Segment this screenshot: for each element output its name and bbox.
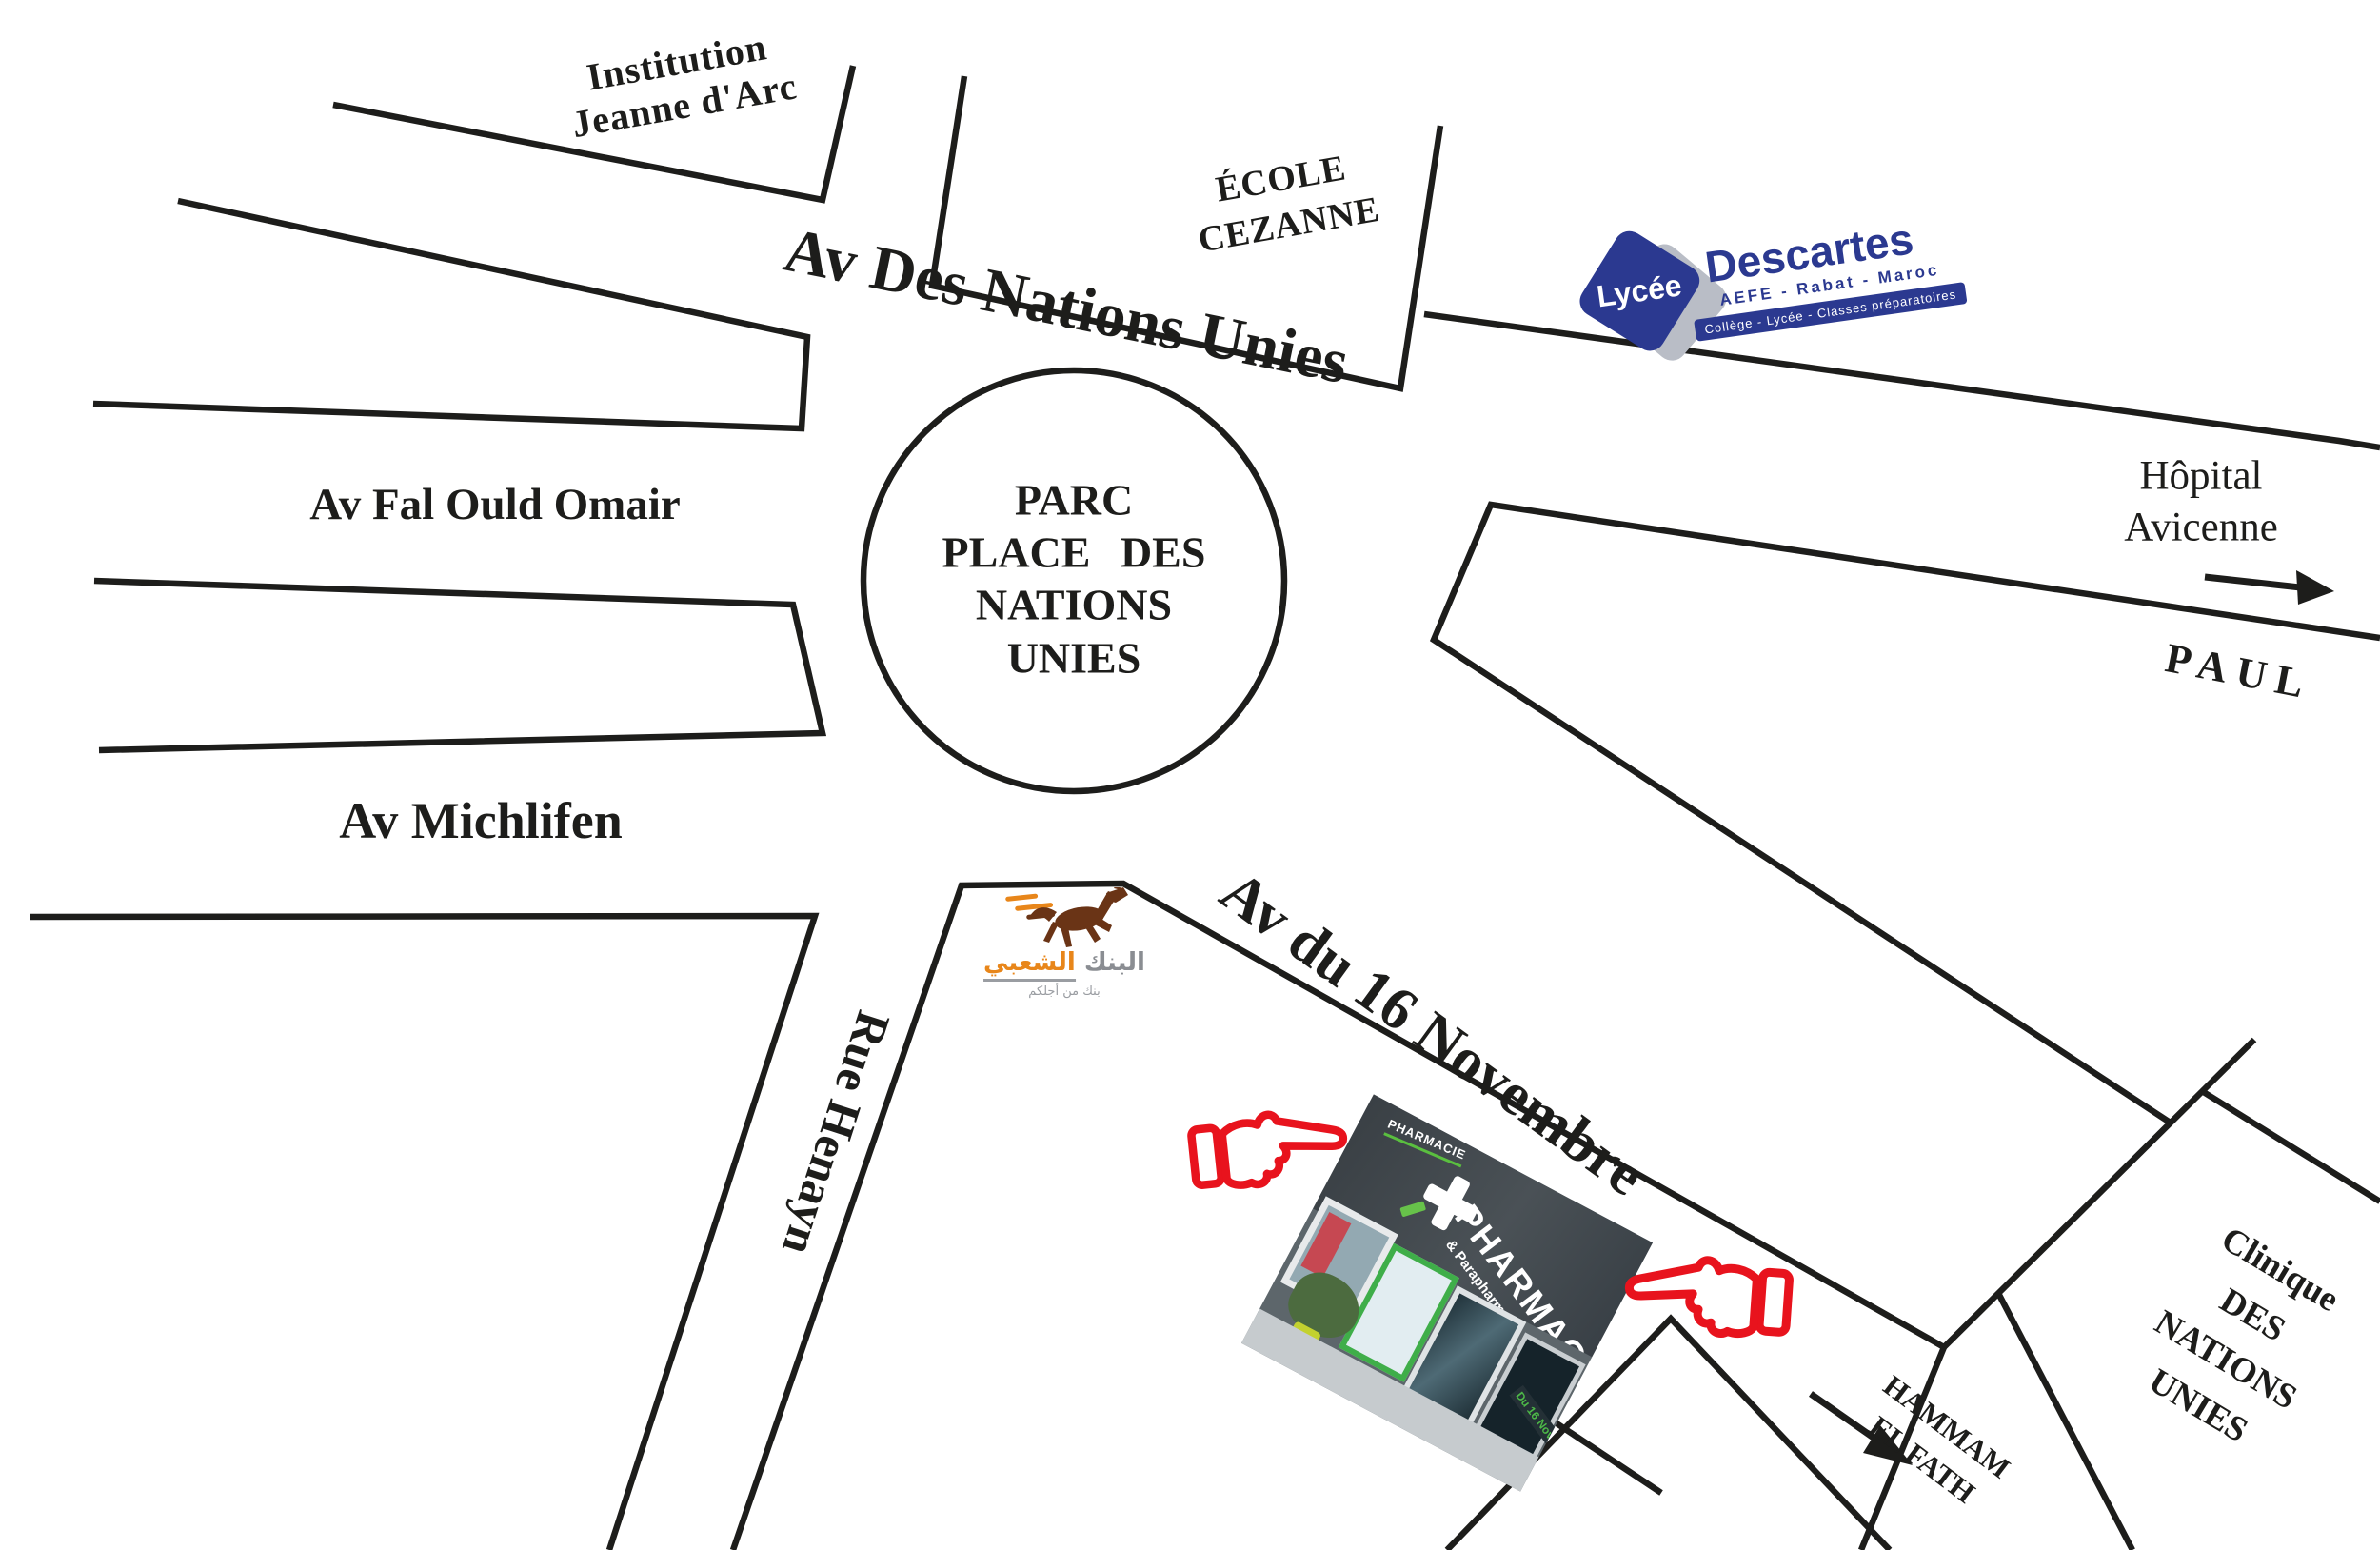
label-hopital-avicenne: Hôpital Avicenne bbox=[2124, 450, 2278, 553]
street-label-av-fal-ould-omair: Av Fal Ould Omair bbox=[309, 479, 681, 530]
bank-name-second: الشعبي bbox=[983, 948, 1076, 982]
road-block-west-3-rue-henayn-west bbox=[30, 916, 815, 1550]
arrow-hospital-head-icon bbox=[2296, 570, 2334, 605]
road-wedge-block-east bbox=[1434, 505, 2380, 1122]
street-label-av-michlifen: Av Michlifen bbox=[339, 791, 622, 850]
horse-icon bbox=[1002, 887, 1144, 950]
bank-name: البنك الشعبي bbox=[983, 948, 1145, 977]
descartes-title: Lycée bbox=[1595, 268, 1684, 314]
road-block-west-2 bbox=[94, 581, 823, 750]
pharmacy-location-map: Institution Jeanne d'Arc Av Des Nations … bbox=[0, 0, 2380, 1550]
road-network bbox=[0, 0, 2380, 1550]
road-clinique-north-edge bbox=[2202, 1091, 2380, 1202]
pointing-hand-right-icon bbox=[1177, 1084, 1359, 1214]
label-parc-place-des-nations-unies: PARC PLACE DES NATIONS UNIES bbox=[942, 474, 1206, 685]
bank-tagline: بنك من أجلكم bbox=[1028, 984, 1100, 999]
arrow-hospital-shaft bbox=[2205, 577, 2300, 587]
banque-populaire-logo: البنك الشعبي بنك من أجلكم bbox=[950, 893, 1179, 1026]
road-block-west-1 bbox=[93, 201, 807, 428]
bank-name-first: البنك bbox=[1084, 948, 1145, 977]
pharmacy-red-poster bbox=[1300, 1212, 1351, 1278]
pointing-hand-left-icon bbox=[1615, 1231, 1803, 1362]
road-clinique-west-edge bbox=[1999, 1295, 2132, 1550]
